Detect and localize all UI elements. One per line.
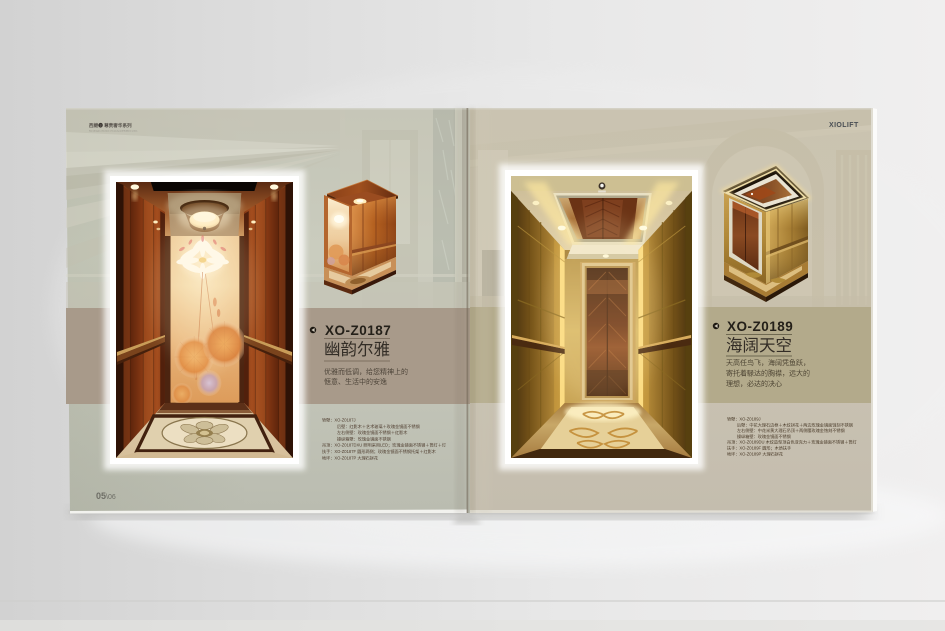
svg-text:Xizi designs elevator of Luxur: Xizi designs elevator of Luxury and Nobl… [89,130,138,133]
svg-text:扶手：XO-Z0187F 圆形两侧；玫瑰金镜面不锈钢托架＋红: 扶手：XO-Z0187F 圆形两侧；玫瑰金镜面不锈钢托架＋红影木 [322,448,436,454]
svg-text:幽韵尔雅: 幽韵尔雅 [324,340,390,359]
svg-text:西继❸ 尊贵奢华系列: 西继❸ 尊贵奢华系列 [89,122,132,129]
svg-text:XO-Z0189: XO-Z0189 [727,319,793,334]
svg-text:操纵箱壁：玫瑰金镜面不锈钢: 操纵箱壁：玫瑰金镜面不锈钢 [737,433,791,439]
svg-text:后壁：中花大理石边框＋木纹拼花＋两边玫瑰金镜面蚀刻不锈钢: 后壁：中花大理石边框＋木纹拼花＋两边玫瑰金镜面蚀刻不锈钢 [737,421,853,427]
svg-text:扶手：XO-Z0189F 圆形；木质扶手: 扶手：XO-Z0189F 圆形；木质扶手 [727,445,791,451]
svg-text:轿壁：XO-Z0189J: 轿壁：XO-Z0189J [727,416,761,422]
svg-text:海阔天空: 海阔天空 [726,336,792,355]
svg-text:天高任鸟飞，海阔凭鱼跃，: 天高任鸟飞，海阔凭鱼跃， [726,358,810,367]
svg-text:吊顶：XO-Z0187DXU 照明采用LED；玫瑰金镜面不锈: 吊顶：XO-Z0187DXU 照明采用LED；玫瑰金镜面不锈钢＋筒灯＋灯 [322,442,446,448]
svg-text:地坪：XO-Z0189P 大理石拼花: 地坪：XO-Z0189P 大理石拼花 [727,450,783,456]
svg-text:轿壁：XO-Z0187J: 轿壁：XO-Z0187J [322,417,356,423]
svg-text:XO-Z0187: XO-Z0187 [325,323,391,338]
svg-text:左右侧壁：中花米黄大理石吊顶＋两侧腰玫瑰金蚀刻不锈钢: 左右侧壁：中花米黄大理石吊顶＋两侧腰玫瑰金蚀刻不锈钢 [737,427,845,433]
svg-text:地坪：XO-Z0187P 大理石拼花: 地坪：XO-Z0187P 大理石拼花 [322,454,378,460]
svg-text:理想，必达的决心: 理想，必达的决心 [726,379,782,388]
svg-text:后壁：红影木＋艺术玻璃＋玫瑰金镜面不锈钢: 后壁：红影木＋艺术玻璃＋玫瑰金镜面不锈钢 [337,423,420,429]
svg-text:优雅而低调，给您精神上的: 优雅而低调，给您精神上的 [324,367,408,376]
svg-text:操纵箱壁：玫瑰金镜面不锈钢: 操纵箱壁：玫瑰金镜面不锈钢 [337,435,391,441]
svg-text:吊顶：XO-Z0189DU 木纹造型顶白色亚克力＋玫瑰金镜面: 吊顶：XO-Z0189DU 木纹造型顶白色亚克力＋玫瑰金镜面不锈钢＋筒灯 [727,439,857,445]
svg-text:XIOLIFT: XIOLIFT [829,122,859,129]
svg-text:左右侧壁：玫瑰金镜面不锈钢＋红影木: 左右侧壁：玫瑰金镜面不锈钢＋红影木 [337,429,407,435]
svg-text:寄托着騄达的胸襟，远大的: 寄托着騄达的胸襟，远大的 [726,369,810,378]
svg-text:惬意、生活中的安逸: 惬意、生活中的安逸 [324,377,387,386]
